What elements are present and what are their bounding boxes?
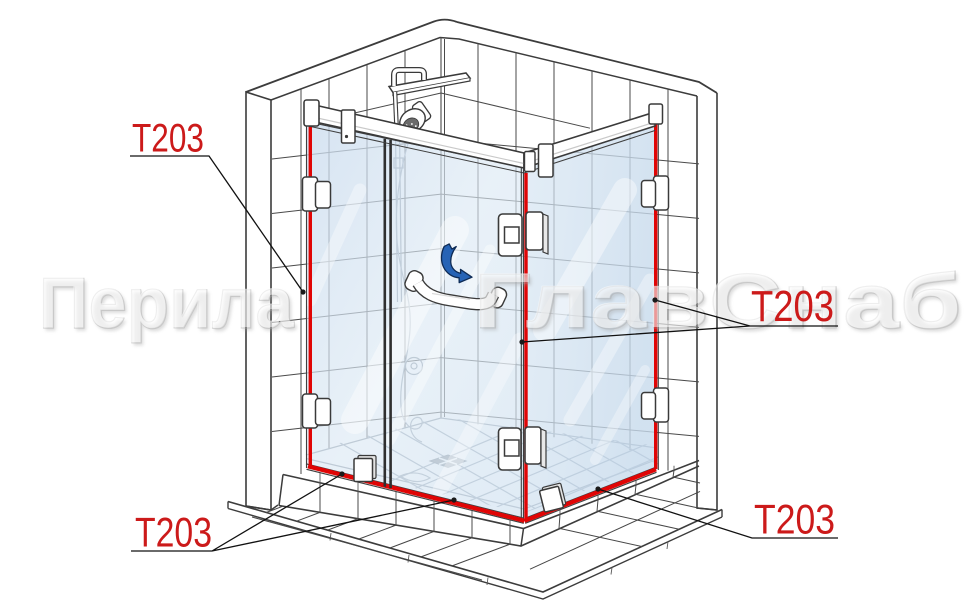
svg-text:ГлавСнаб: ГлавСнаб [473,256,961,344]
svg-text:T203: T203 [132,117,204,161]
svg-text:T203: T203 [754,496,835,543]
svg-text:T203: T203 [751,282,834,331]
svg-text:T203: T203 [135,509,212,556]
svg-text:Перила: Перила [38,263,294,343]
